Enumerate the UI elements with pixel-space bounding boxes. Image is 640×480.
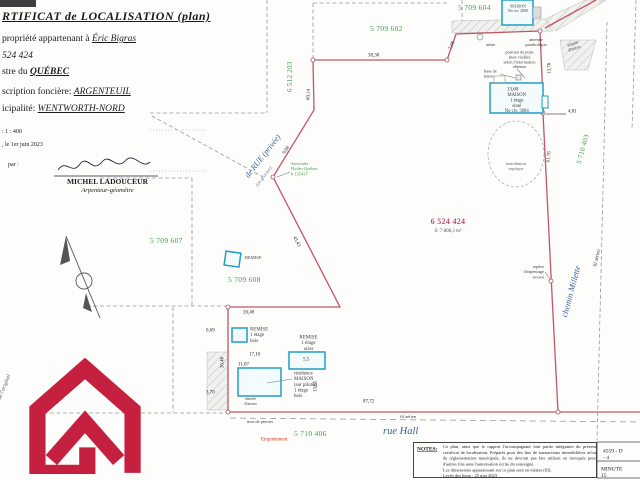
dim-60-14: 60,14 xyxy=(305,89,311,100)
label-remise: REMISE xyxy=(245,255,262,260)
label-base-beton: base de béton xyxy=(484,69,497,79)
label-fil-aerien-sud: fil aérien xyxy=(400,414,416,419)
label-antenne: antenne parabolique xyxy=(516,37,556,47)
main-lot-area: S: 7 808,3 m² xyxy=(420,228,476,234)
lot-label-6512203: 6 512 203 xyxy=(286,61,294,92)
dim-3-70: 3,70 xyxy=(206,389,215,395)
dim-20-48: 20,48 xyxy=(243,309,254,315)
surveyor-name: MICHEL LADOUCEUR xyxy=(50,178,165,187)
label-empietement: Empiètement xyxy=(261,436,287,442)
lot-label-5709602: 5 709 602 xyxy=(370,25,403,34)
registry-prefix: stre du xyxy=(2,67,30,77)
lot-label-5709608: 5 709 608 xyxy=(228,276,261,285)
certificate-of-location-plan: RTIFICAT de LOCALISATION (plan) propriét… xyxy=(0,0,640,480)
lot-number-line: 524 424 xyxy=(2,51,33,62)
label-puits: position du puits (non visible) selon l'… xyxy=(497,50,542,70)
label-servitude: Servitude Hydro-Québec # 135437 xyxy=(291,161,318,177)
dim-11-07: 11,07 xyxy=(238,361,249,367)
registry-name: QUÉBEC xyxy=(30,67,69,77)
filecard-minute: MINUTE 15 xyxy=(601,466,622,479)
prepared-by-label: par : xyxy=(8,161,19,168)
owner-prefix: propriété appartenant à xyxy=(2,34,92,44)
notes-label: NOTES: xyxy=(417,446,437,452)
dim-4-81: 4,81 xyxy=(568,108,577,114)
date-line: , le 1er juin 2023 xyxy=(2,141,43,148)
dim-5-5: 5,5 xyxy=(303,356,309,362)
label-mur-pierres: mur de pierres xyxy=(247,419,273,424)
label-arbre: arbre xyxy=(486,42,495,47)
dim-13-76: 13,76 xyxy=(546,63,552,74)
filecard-dossier: 4559 - D - 4 xyxy=(603,448,623,461)
municipality-name: WENTWORTH-NORD xyxy=(38,104,125,114)
dim-0-69: 0,69 xyxy=(206,327,215,333)
road-label-rue-hall: rue Hall xyxy=(383,426,418,438)
notes-body: Ce plan, ainsi que le rapport l'accompag… xyxy=(443,444,596,479)
lot-label-5710406: 5 710 406 xyxy=(294,430,327,439)
label-remise-acier: REMISE 1 étage acier xyxy=(292,334,325,351)
dim-61-76: 61,76 xyxy=(545,151,552,163)
owner-name: Éric Bigras xyxy=(92,34,136,44)
registration-district-line: scription foncière: ARGENTEUIL xyxy=(2,87,131,98)
main-lot-number: 6 524 424 xyxy=(418,217,478,226)
label-repere: repère d'arpentage trouvé xyxy=(502,264,544,280)
dim-17-10: 17,10 xyxy=(249,351,260,357)
tree-symbol xyxy=(477,34,483,40)
label-residence: résidence MAISON (sur pilotis) 1 étage b… xyxy=(294,370,333,398)
signature-scribble xyxy=(54,158,158,176)
label-maison-2000: MAISON No civ. 2000 xyxy=(503,4,533,13)
label-remise-bois: REMISE 1 étage bois xyxy=(250,326,283,343)
registry-line: stre du QUÉBEC xyxy=(2,67,69,78)
district-name: ARGENTEUIL xyxy=(74,87,131,97)
district-prefix: scription foncière: xyxy=(2,87,74,97)
form-ruling-dots xyxy=(150,130,205,171)
dim-38-38: 38,38 xyxy=(368,52,379,58)
septic-field-outline xyxy=(488,121,544,187)
house-logo-icon xyxy=(26,358,144,474)
municipality-prefix: icipalité: xyxy=(2,104,38,114)
label-entree-autos-sw: entrée d'autos xyxy=(238,396,263,406)
label-septique: installation septique xyxy=(492,161,540,171)
municipality-line: icipalité: WENTWORTH-NORD xyxy=(2,104,125,115)
owner-line: propriété appartenant à Éric Bigras xyxy=(2,34,136,45)
scale-line: : 1 : 400 xyxy=(2,128,22,135)
dim-87-72: 87,72 xyxy=(363,398,374,404)
surveyor-title: Arpenteur-géomètre xyxy=(50,187,165,194)
lot-label-5709607: 5 709 607 xyxy=(150,237,183,246)
dim-30-48: 30,48 xyxy=(219,357,225,368)
label-maison-3004: MAISON 1 étage situé No civ. 3004 xyxy=(492,92,542,113)
document-title: RTIFICAT de LOCALISATION (plan) xyxy=(2,10,211,24)
lot-label-5709604: 5 709 604 xyxy=(458,4,491,13)
